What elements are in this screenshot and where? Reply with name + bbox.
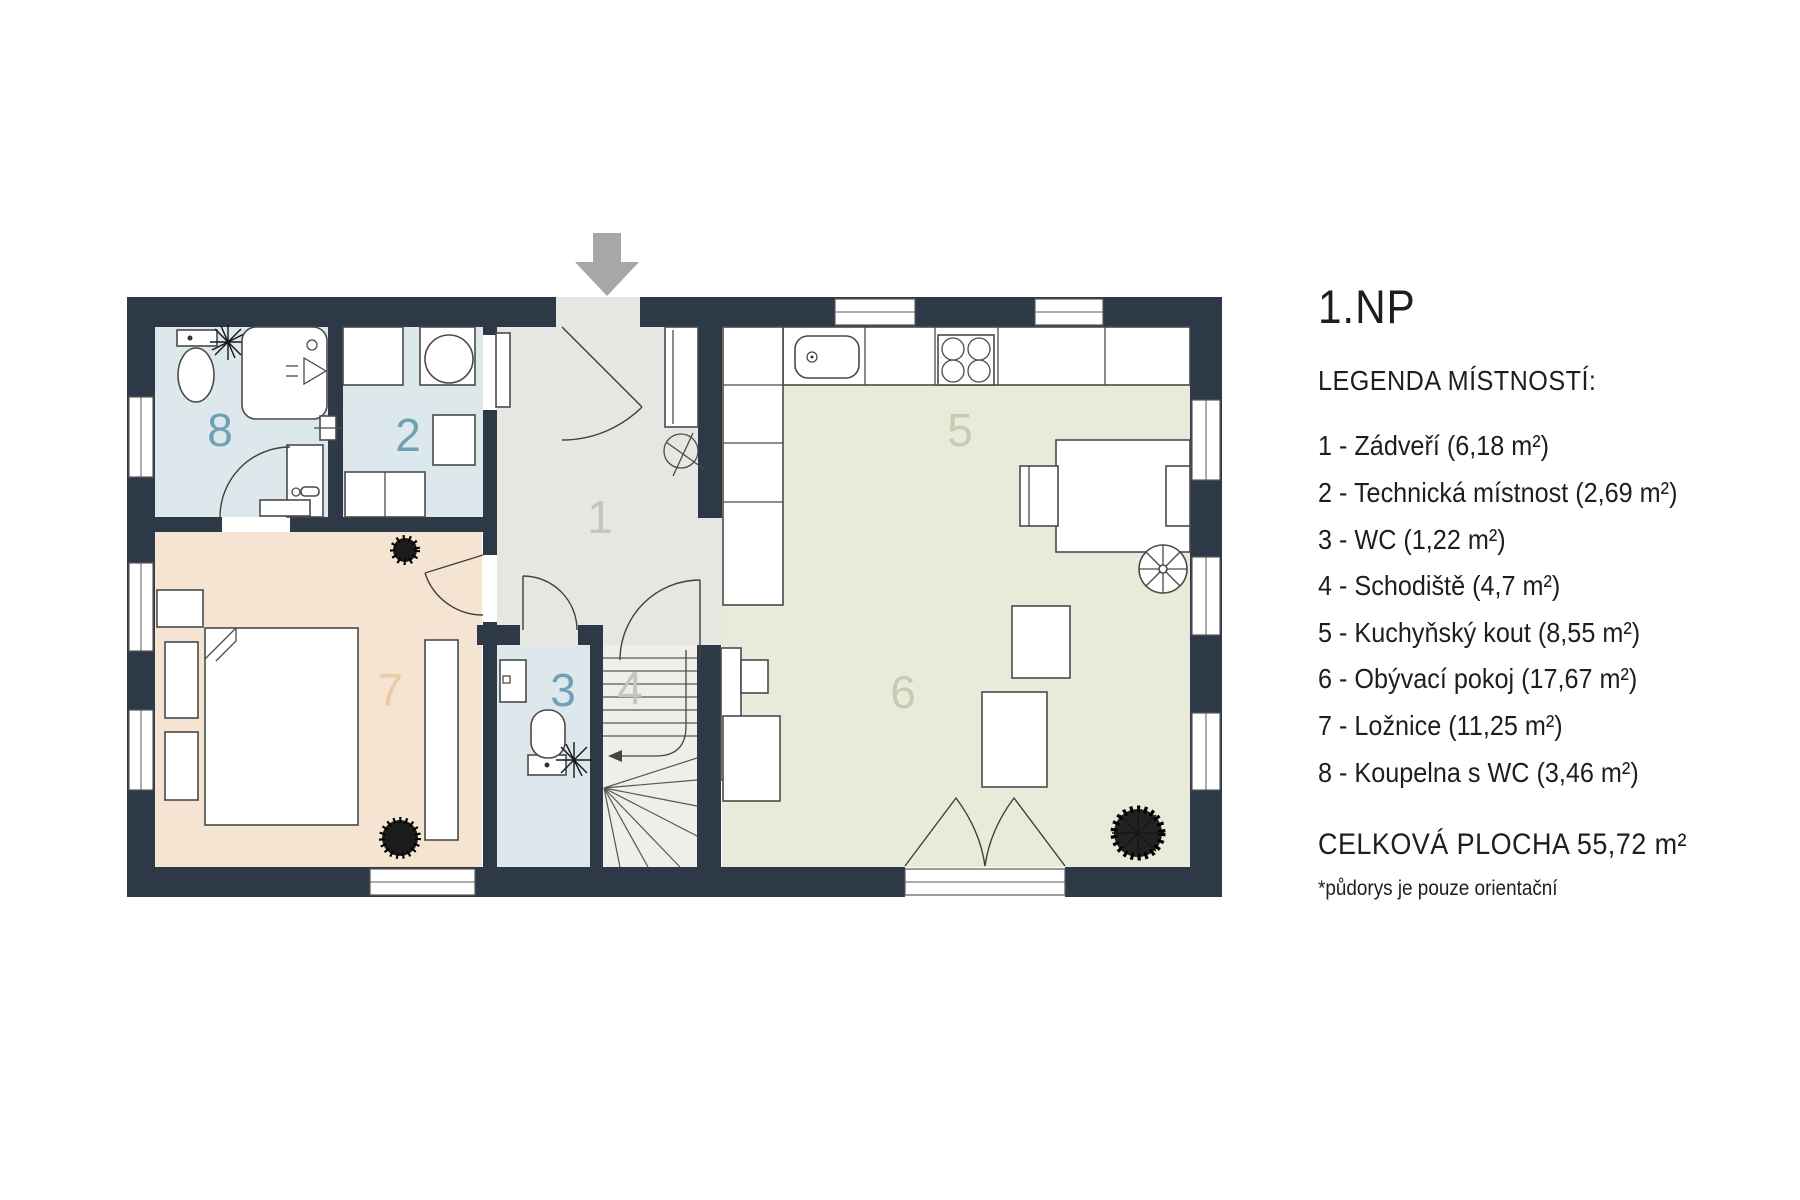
wall-wc-stairs — [590, 645, 603, 867]
nightstand-2 — [165, 732, 198, 800]
kitchen-stove — [938, 335, 994, 385]
room-label-4: 4 — [617, 662, 643, 714]
french-door-threshold — [905, 869, 1065, 895]
cabinet-wc — [500, 660, 526, 702]
plant-room8 — [210, 324, 246, 360]
wall-room2-entry-bottom — [483, 410, 497, 517]
room-label-1: 1 — [587, 491, 613, 543]
shower-room8 — [242, 327, 327, 419]
cabinet-room2 — [345, 472, 425, 517]
window-right-2 — [1192, 557, 1220, 635]
wall-wc-top-right — [578, 625, 603, 645]
tv — [741, 660, 768, 693]
toilet-room8 — [177, 330, 217, 402]
legend-item: 6 - Obývací pokoj (17,67 m²) — [1318, 656, 1741, 703]
window-left-2 — [129, 563, 153, 651]
window-top-1 — [835, 299, 915, 325]
wall-room2-entry-top — [483, 327, 497, 335]
bench-room8 — [260, 500, 310, 516]
plant-wc — [556, 742, 592, 778]
wall-top-right — [640, 297, 1222, 327]
window-right-1 — [1192, 400, 1220, 480]
coffee-table — [723, 716, 780, 801]
wardrobe — [425, 640, 458, 840]
washing-machine — [420, 327, 475, 385]
legend-item: 7 - Ložnice (11,25 m²) — [1318, 703, 1741, 750]
pendant-fan-symbol — [1139, 545, 1187, 593]
plant-bedroom-bottom — [382, 820, 418, 856]
floor-plan-page: { "plan_title": "1.NP", "legend": { "hea… — [0, 0, 1800, 1200]
wall-bedroom-hall-bottom — [483, 622, 497, 867]
wall-bottom-left — [127, 867, 905, 897]
window-left-3 — [129, 710, 153, 790]
legend-item: 8 - Koupelna s WC (3,46 m²) — [1318, 750, 1741, 797]
wall-bedroom-hall-top — [483, 517, 497, 555]
nightstand-1 — [165, 642, 198, 718]
wall-room8-bedroom — [155, 517, 222, 532]
wall-stairs-living — [697, 645, 721, 867]
page-title: 1.NP — [1318, 282, 1741, 331]
legend-item: 1 - Zádveří (6,18 m²) — [1318, 423, 1741, 470]
legend-item: 2 - Technická místnost (2,69 m²) — [1318, 470, 1741, 517]
entrance-door-gap — [556, 297, 640, 327]
disclaimer-note: *půdorys je pouze orientační — [1318, 877, 1741, 901]
boiler — [433, 415, 475, 465]
wall-entry-kitchen — [698, 327, 722, 518]
legend-items: 1 - Zádveří (6,18 m²) 2 - Technická míst… — [1318, 423, 1741, 796]
room-label-3: 3 — [550, 664, 576, 716]
legend-item: 4 - Schodiště (4,7 m²) — [1318, 563, 1741, 610]
room-label-6: 6 — [890, 666, 916, 718]
toilet-wc — [528, 710, 566, 775]
sofa-seat-right — [1012, 606, 1070, 678]
wall-room2-bedroom — [290, 517, 497, 532]
dining-chair-left — [1020, 466, 1058, 526]
room-label-8: 8 — [207, 404, 233, 456]
shelf-room2 — [343, 327, 403, 385]
legend-item: 3 - WC (1,22 m²) — [1318, 517, 1741, 564]
room-label-5: 5 — [947, 404, 973, 456]
technical-room-door — [496, 333, 510, 407]
entrance-arrow-icon — [575, 233, 639, 296]
legend-heading: LEGENDA MÍSTNOSTÍ: — [1318, 365, 1741, 397]
bed — [205, 628, 358, 825]
legend-item: 5 - Kuchyňský kout (8,55 m²) — [1318, 610, 1741, 657]
window-left-1 — [129, 397, 153, 477]
legend-panel: 1.NP LEGENDA MÍSTNOSTÍ: 1 - Zádveří (6,1… — [1318, 282, 1741, 901]
window-bottom — [370, 869, 475, 895]
room-label-7: 7 — [377, 664, 403, 716]
kitchen-sink — [795, 336, 859, 378]
window-top-2 — [1035, 299, 1103, 325]
plant-bedroom-top — [393, 538, 417, 562]
wall-wc-top-left — [477, 625, 520, 645]
sofa-chaise — [982, 692, 1047, 787]
entry-closet — [665, 327, 698, 427]
dining-chair-right — [1166, 466, 1190, 526]
dresser — [157, 590, 203, 627]
window-right-3 — [1192, 713, 1220, 790]
total-area: CELKOVÁ PLOCHA 55,72 m² — [1318, 828, 1741, 862]
room-label-2: 2 — [395, 409, 421, 461]
kitchen-counter-left — [723, 327, 783, 605]
wall-top-left — [127, 297, 556, 327]
